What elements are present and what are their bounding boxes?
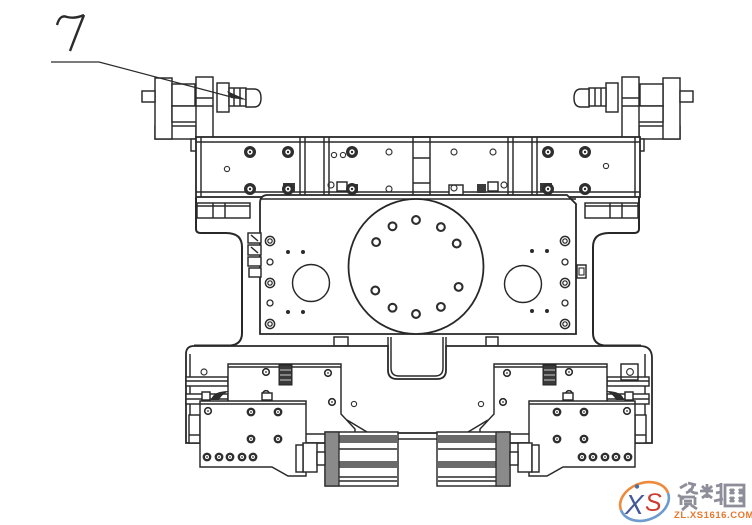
svg-text:ZL.XS1616.COM: ZL.XS1616.COM <box>674 510 752 521</box>
svg-text:X: X <box>624 489 645 520</box>
svg-text:S: S <box>645 489 662 517</box>
